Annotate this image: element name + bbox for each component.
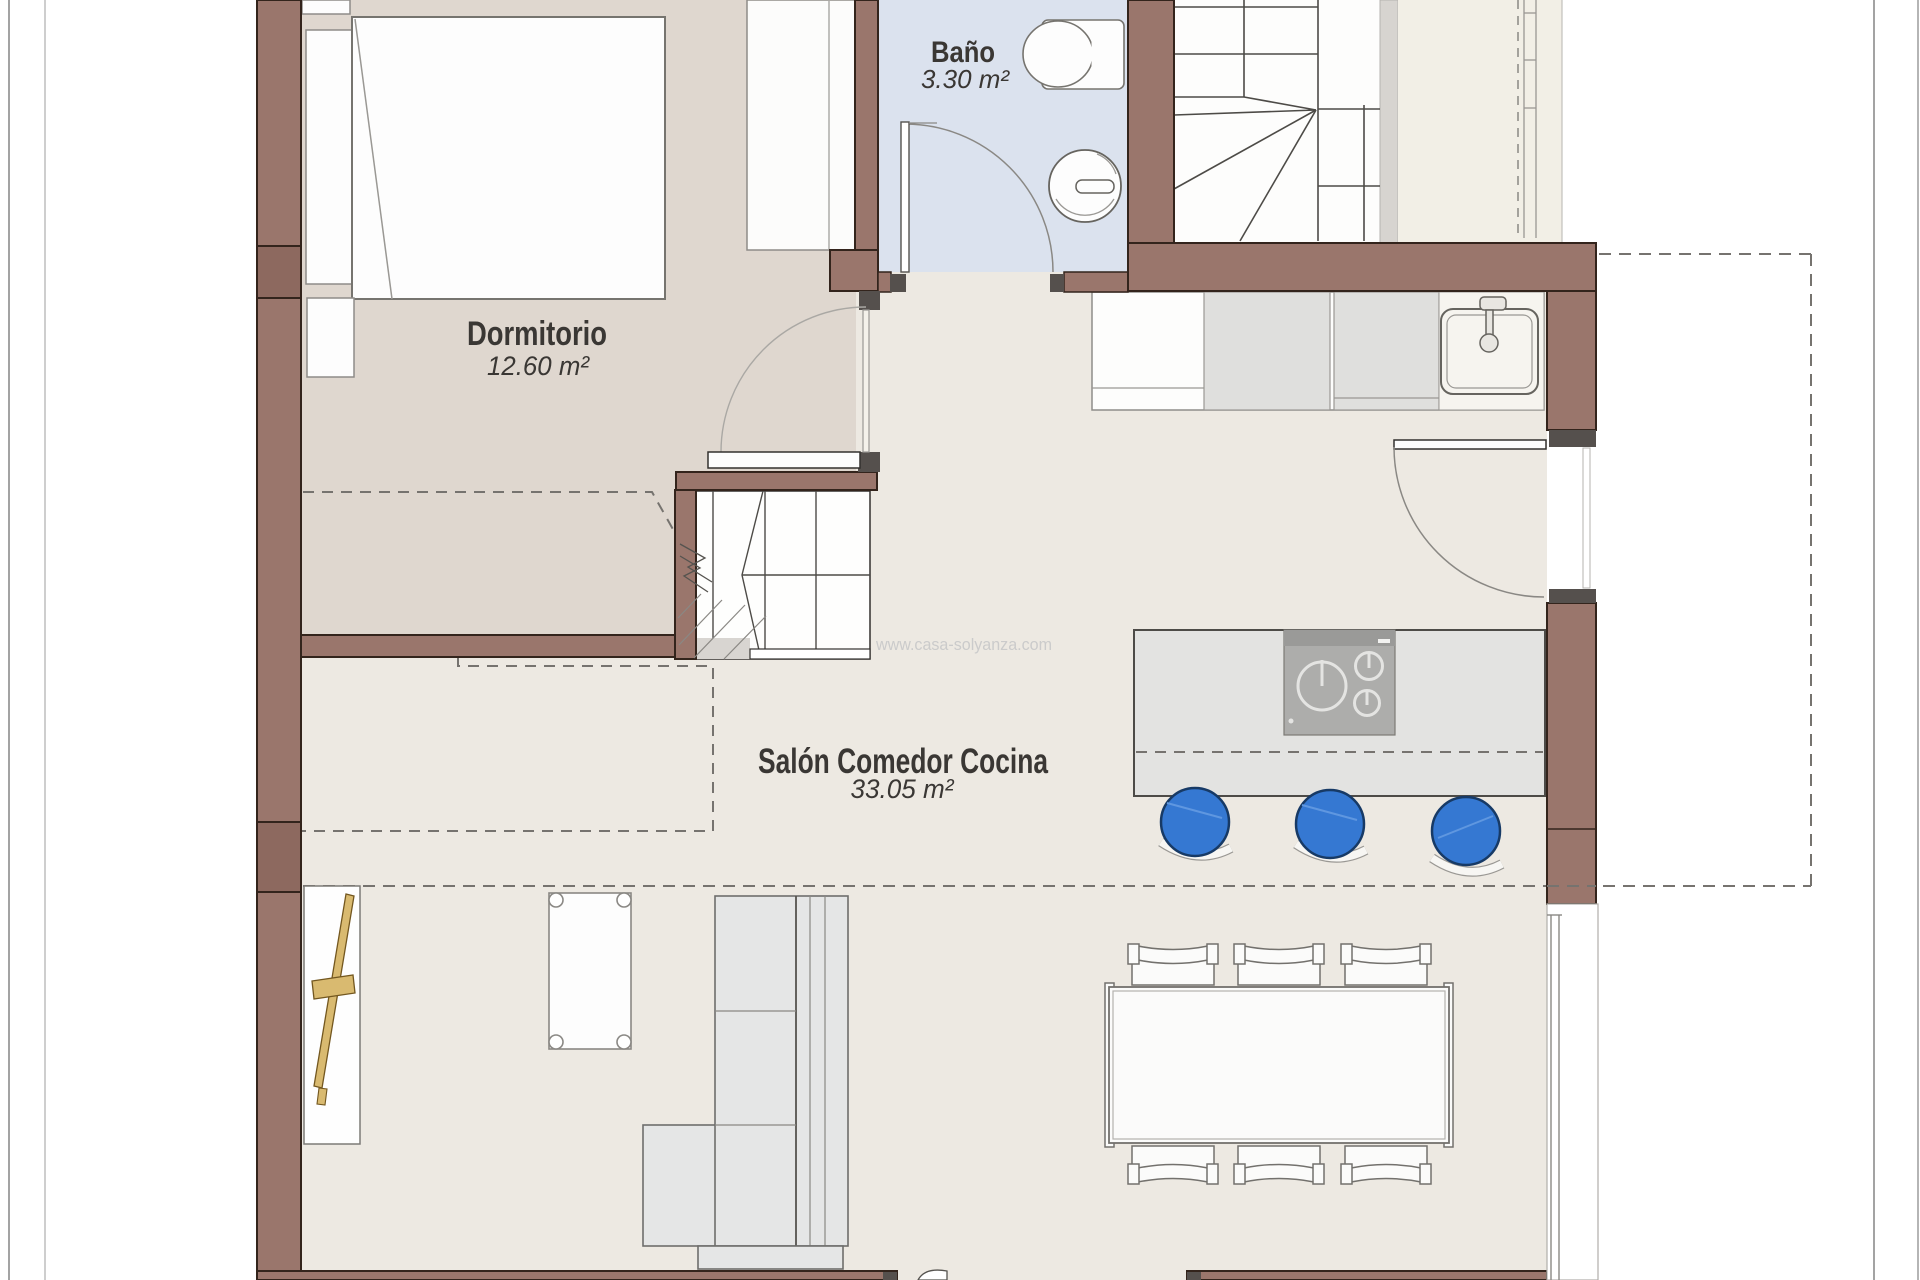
svg-text:12.60 m²: 12.60 m² xyxy=(487,351,590,381)
svg-text:3.30 m²: 3.30 m² xyxy=(921,64,1010,94)
svg-text:Dormitorio: Dormitorio xyxy=(467,315,607,353)
svg-text:33.05 m²: 33.05 m² xyxy=(851,774,955,804)
svg-text:www.casa-solyanza.com: www.casa-solyanza.com xyxy=(875,635,1052,654)
